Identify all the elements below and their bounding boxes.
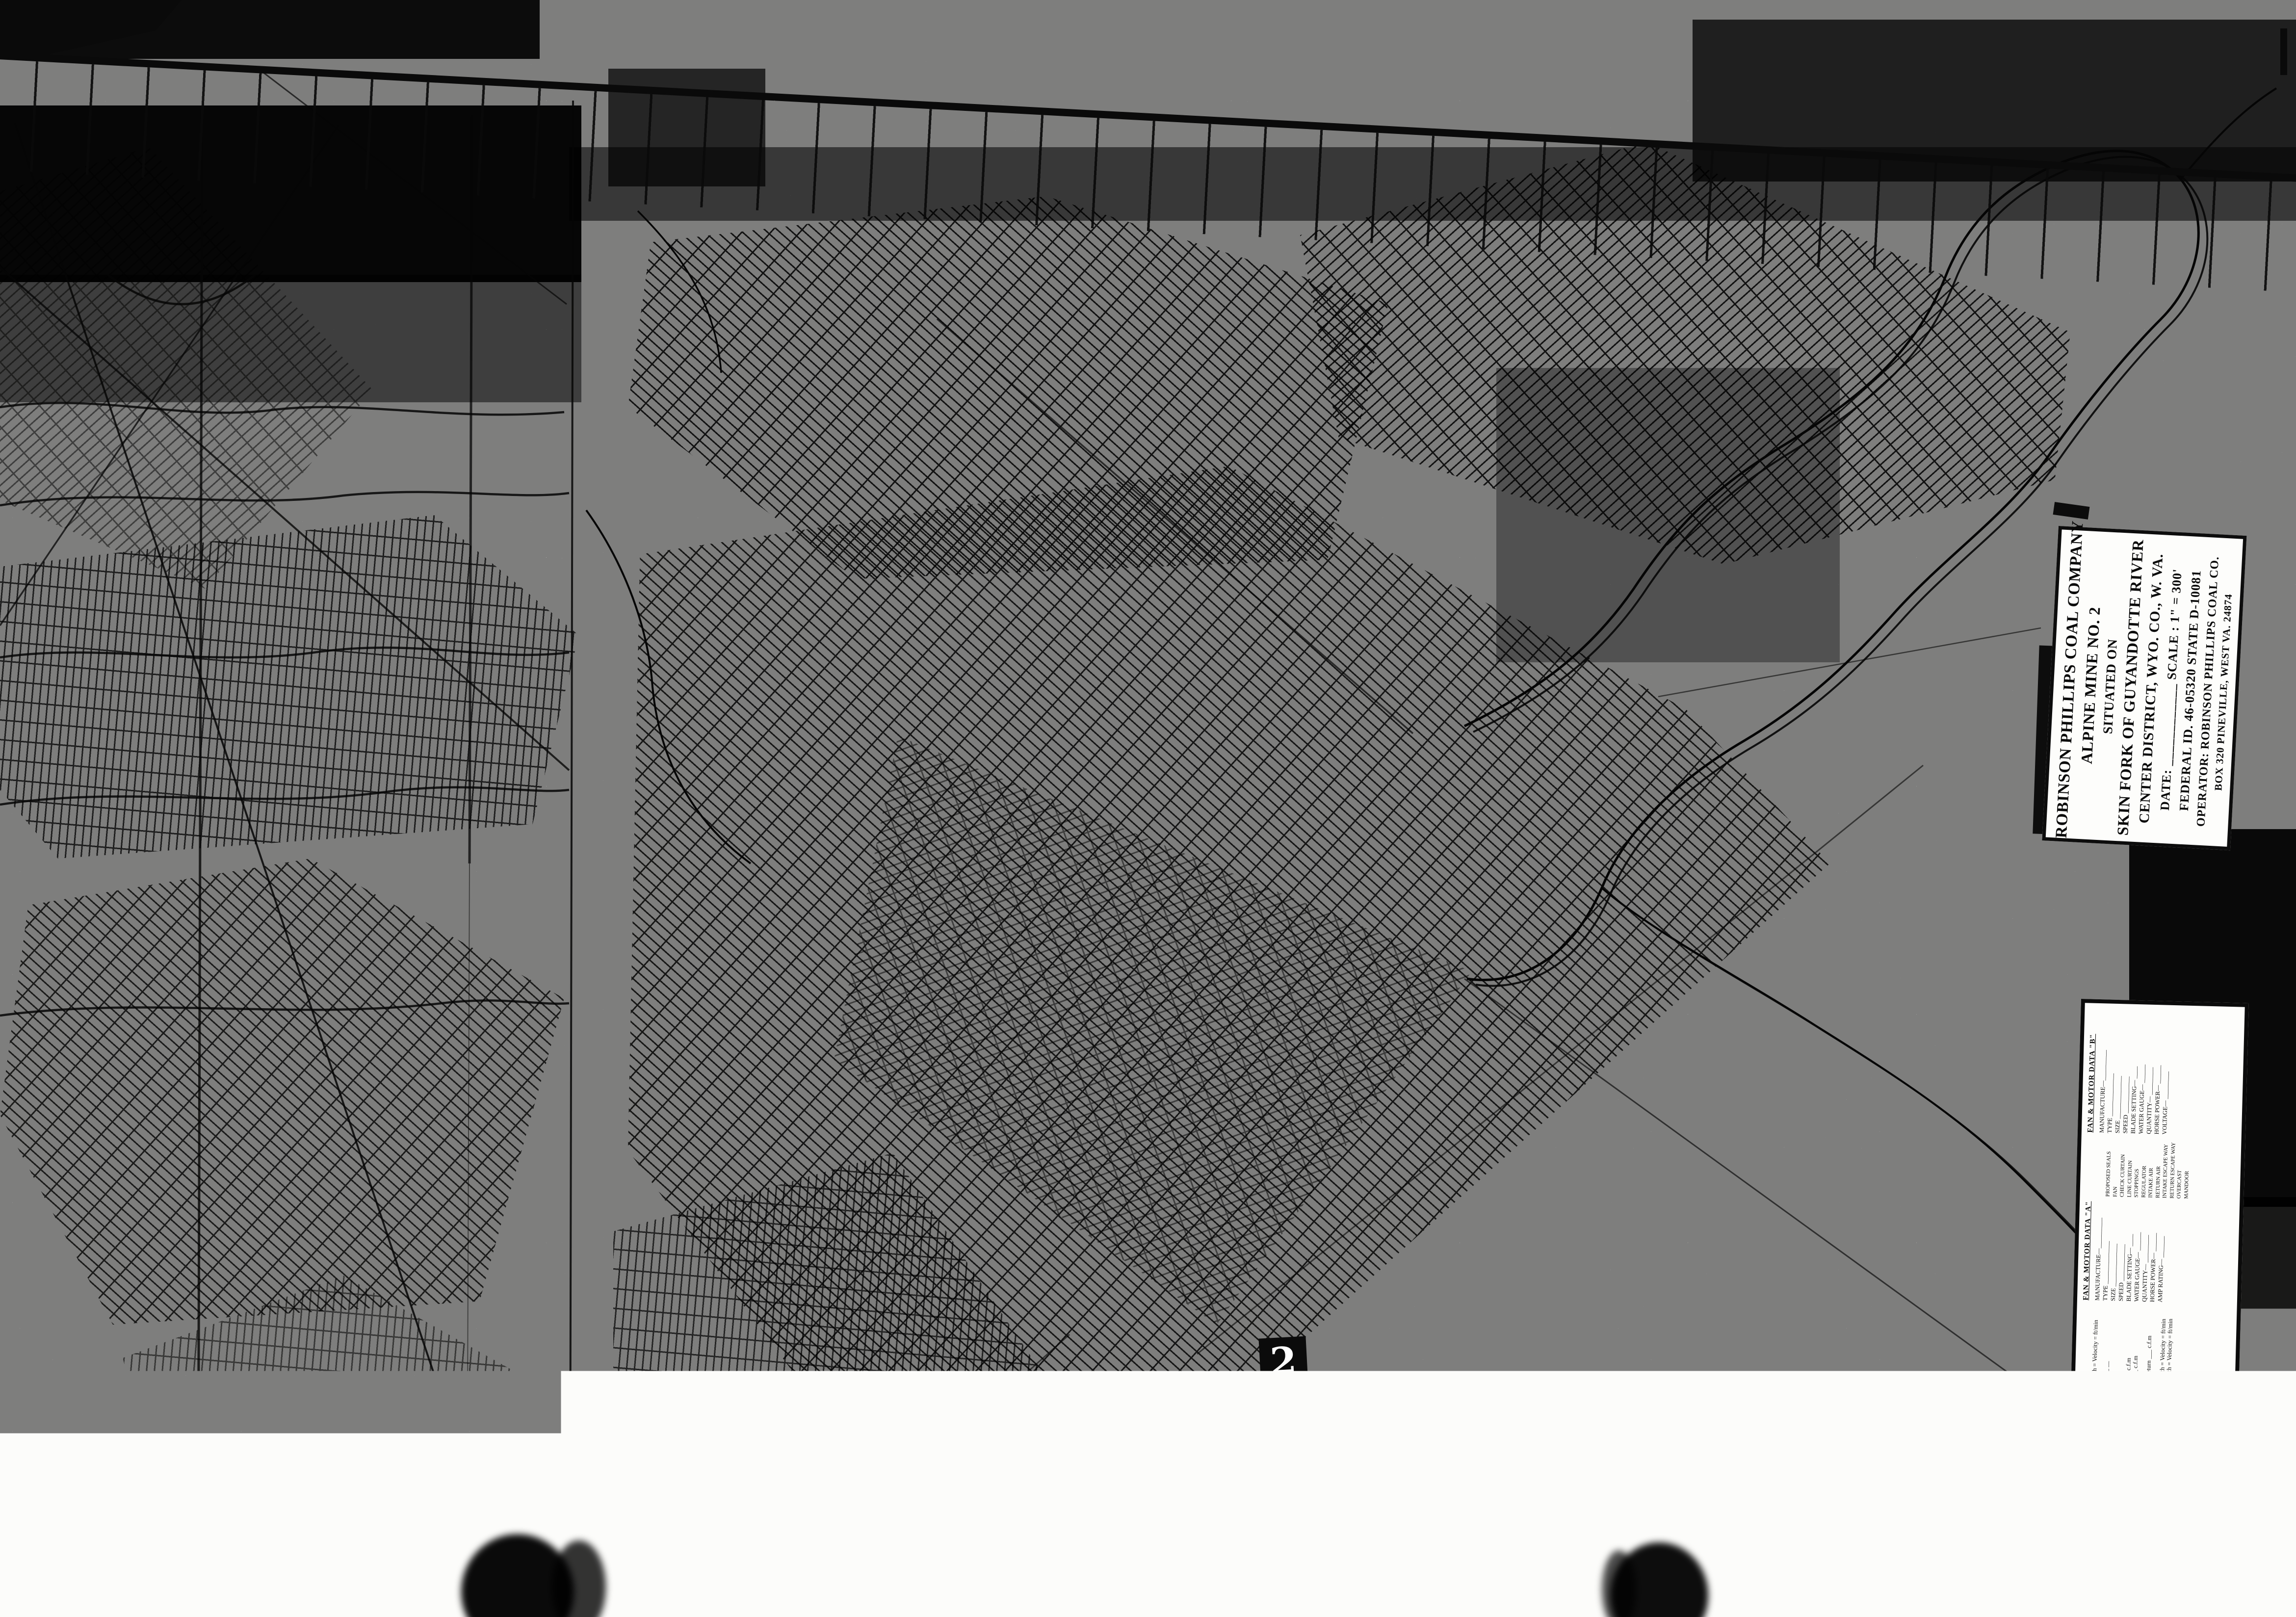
microfilm-map-scan: ROBINSON PHILLIPS COAL COMPANY ALPINE MI… xyxy=(0,0,2296,1617)
fan-motor-b-title: FAN & MOTOR DATA "B" xyxy=(2087,1010,2098,1132)
title-block: ROBINSON PHILLIPS COAL COMPANY ALPINE MI… xyxy=(2042,526,2250,855)
legend-items-column: LEGEND No 1 Air @ Belt Entry Height = Wi… xyxy=(2078,1306,2232,1467)
frame-number-marker: 2 xyxy=(1259,1336,1308,1387)
mine-workings-cross-rows xyxy=(834,736,1472,1325)
right-edge-mark-top xyxy=(2280,28,2287,75)
film-strip: WVDM 03189 30 36X 368817 xyxy=(754,1520,1494,1609)
legend-item-list: No 1 Air @ Belt Entry Height = Width = V… xyxy=(2089,1306,2221,1467)
fan-motor-a-rows: MANUFACTURE—__________TYPE _____________… xyxy=(2093,1201,2166,1303)
fan-motor-a-column: FAN & MOTOR DATA "A" MANUFACTURE—_______… xyxy=(2082,1138,2237,1304)
fan-motor-a-title: FAN & MOTOR DATA "A" xyxy=(2082,1201,2093,1301)
film-strip-code-2: 36X xyxy=(1164,1544,1251,1601)
top-left-corner-blot xyxy=(0,0,182,55)
contour-lines xyxy=(0,275,569,1016)
guyandotte-river xyxy=(586,88,2276,1462)
mine-workings-central-band xyxy=(628,466,1830,1570)
film-strip-code-1: 30 xyxy=(1060,1527,1135,1578)
top-ruler-ticks xyxy=(0,58,2296,307)
legend-title: LEGEND xyxy=(2078,1306,2090,1463)
scratch-lines xyxy=(0,66,2114,1563)
fan-motor-b-rows: MANUFACTURE—__________TYPE _____________… xyxy=(2098,1010,2171,1135)
scale-checker-bar xyxy=(1191,1407,1241,1426)
left-sheet-grid-top xyxy=(0,147,373,589)
film-strip-prefix: WVDM xyxy=(755,1524,824,1565)
fan-motor-b-column: FAN & MOTOR DATA "B" MANUFACTURE—_______… xyxy=(2087,1010,2240,1136)
legend-box: LEGEND No 1 Air @ Belt Entry Height = Wi… xyxy=(2069,999,2249,1475)
legend-symbol-label: MANDOOR xyxy=(2183,1143,2191,1199)
film-strip-code-3: 368817 xyxy=(1296,1540,1493,1604)
mine-workings-bottom-left xyxy=(613,1153,1079,1545)
fold-lines xyxy=(198,101,573,1545)
left-sheet-grid-lower xyxy=(0,859,564,1325)
film-strip-code-0: 03189 xyxy=(836,1537,1014,1599)
left-sheet-grid-mid xyxy=(0,515,579,859)
legend-symbols: PROPOSED SEALSFANCHECK CURTAINLINE CURTA… xyxy=(2104,1141,2236,1200)
mine-workings-upper-band xyxy=(628,196,1388,579)
title-block-dash-mark xyxy=(2053,502,2090,520)
top-ruler-comb xyxy=(0,51,2296,307)
